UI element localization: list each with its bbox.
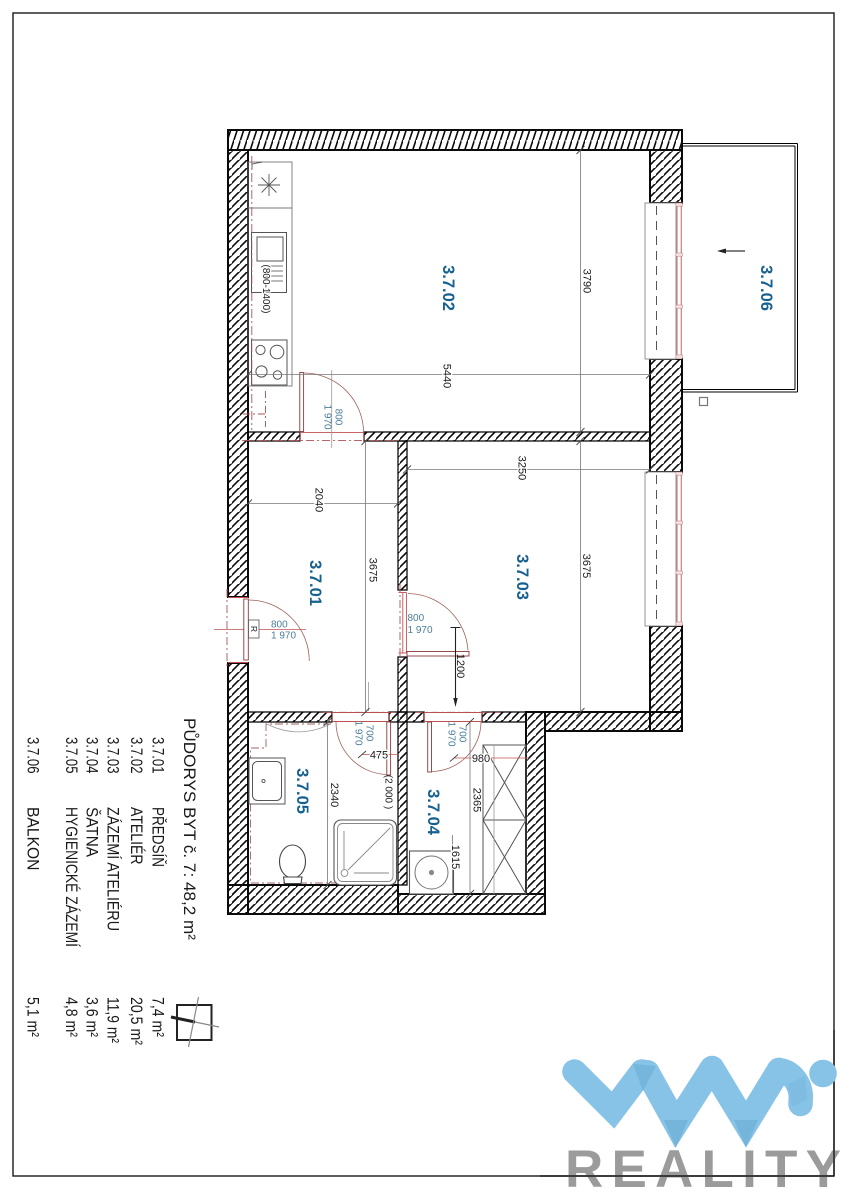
- svg-text:3.7.02: 3.7.02: [439, 265, 457, 311]
- svg-text:REALITY: REALITY: [565, 1140, 847, 1199]
- svg-text:1 970: 1 970: [322, 404, 333, 429]
- svg-text:BALKON: BALKON: [24, 807, 43, 871]
- svg-text:7,4 m²: 7,4 m²: [149, 997, 168, 1037]
- svg-text:ŠATNA: ŠATNA: [83, 807, 102, 858]
- svg-text:800: 800: [333, 409, 344, 426]
- svg-text:3.7.04: 3.7.04: [83, 737, 102, 774]
- svg-text:3.7.06: 3.7.06: [757, 265, 775, 311]
- svg-text:3.7.06: 3.7.06: [24, 737, 43, 774]
- svg-text:PŮDORYS BYT č. 7: 48,2 m²: PŮDORYS BYT č. 7: 48,2 m²: [180, 718, 199, 940]
- svg-text:HYGIENICKÉ ZÁZEMÍ: HYGIENICKÉ ZÁZEMÍ: [62, 807, 81, 947]
- svg-text:20,5 m²: 20,5 m²: [127, 997, 146, 1045]
- svg-text:980: 980: [472, 753, 490, 765]
- svg-text:PŘEDSÍŇ: PŘEDSÍŇ: [149, 807, 168, 867]
- svg-text:3.7.04: 3.7.04: [424, 789, 442, 836]
- svg-text:3.7.02: 3.7.02: [127, 737, 146, 774]
- svg-text:700: 700: [457, 726, 468, 743]
- svg-text:3250: 3250: [516, 456, 528, 480]
- svg-text:(800-1400): (800-1400): [260, 265, 272, 314]
- svg-text:3.7.03: 3.7.03: [104, 737, 123, 774]
- svg-text:1615: 1615: [449, 845, 461, 869]
- svg-text:3675: 3675: [367, 558, 379, 582]
- svg-text:3790: 3790: [581, 269, 593, 293]
- svg-text:4,8 m²: 4,8 m²: [62, 997, 81, 1037]
- svg-text:3,6 m²: 3,6 m²: [83, 997, 102, 1037]
- svg-text:R: R: [249, 626, 259, 632]
- svg-text:1 970: 1 970: [353, 720, 364, 745]
- svg-text:3.7.03: 3.7.03: [513, 554, 531, 600]
- svg-text:800: 800: [408, 613, 425, 624]
- svg-text:3675: 3675: [580, 554, 592, 578]
- svg-text:2340: 2340: [328, 783, 340, 807]
- svg-text:700: 700: [364, 725, 375, 742]
- svg-text:2040: 2040: [313, 488, 325, 512]
- svg-text:ZÁZEMÍ ATELIÉRU: ZÁZEMÍ ATELIÉRU: [104, 807, 123, 931]
- svg-text:(2 000 ): (2 000 ): [382, 775, 393, 809]
- svg-text:1 970: 1 970: [408, 625, 433, 636]
- svg-text:11,9 m²: 11,9 m²: [104, 997, 123, 1043]
- svg-text:2365: 2365: [471, 788, 483, 812]
- svg-text:3.7.05: 3.7.05: [62, 737, 81, 774]
- svg-text:5,1 m²: 5,1 m²: [24, 997, 43, 1037]
- svg-text:3.7.01: 3.7.01: [306, 560, 324, 606]
- svg-text:1200: 1200: [454, 654, 466, 678]
- svg-text:1 970: 1 970: [271, 631, 296, 642]
- svg-text:5440: 5440: [441, 364, 453, 388]
- svg-text:1 970: 1 970: [446, 721, 457, 746]
- svg-text:3.7.01: 3.7.01: [149, 737, 168, 774]
- svg-text:475: 475: [370, 749, 388, 761]
- svg-text:800: 800: [271, 620, 288, 631]
- svg-text:3.7.05: 3.7.05: [293, 768, 311, 814]
- svg-text:ATELIÉR: ATELIÉR: [127, 807, 146, 865]
